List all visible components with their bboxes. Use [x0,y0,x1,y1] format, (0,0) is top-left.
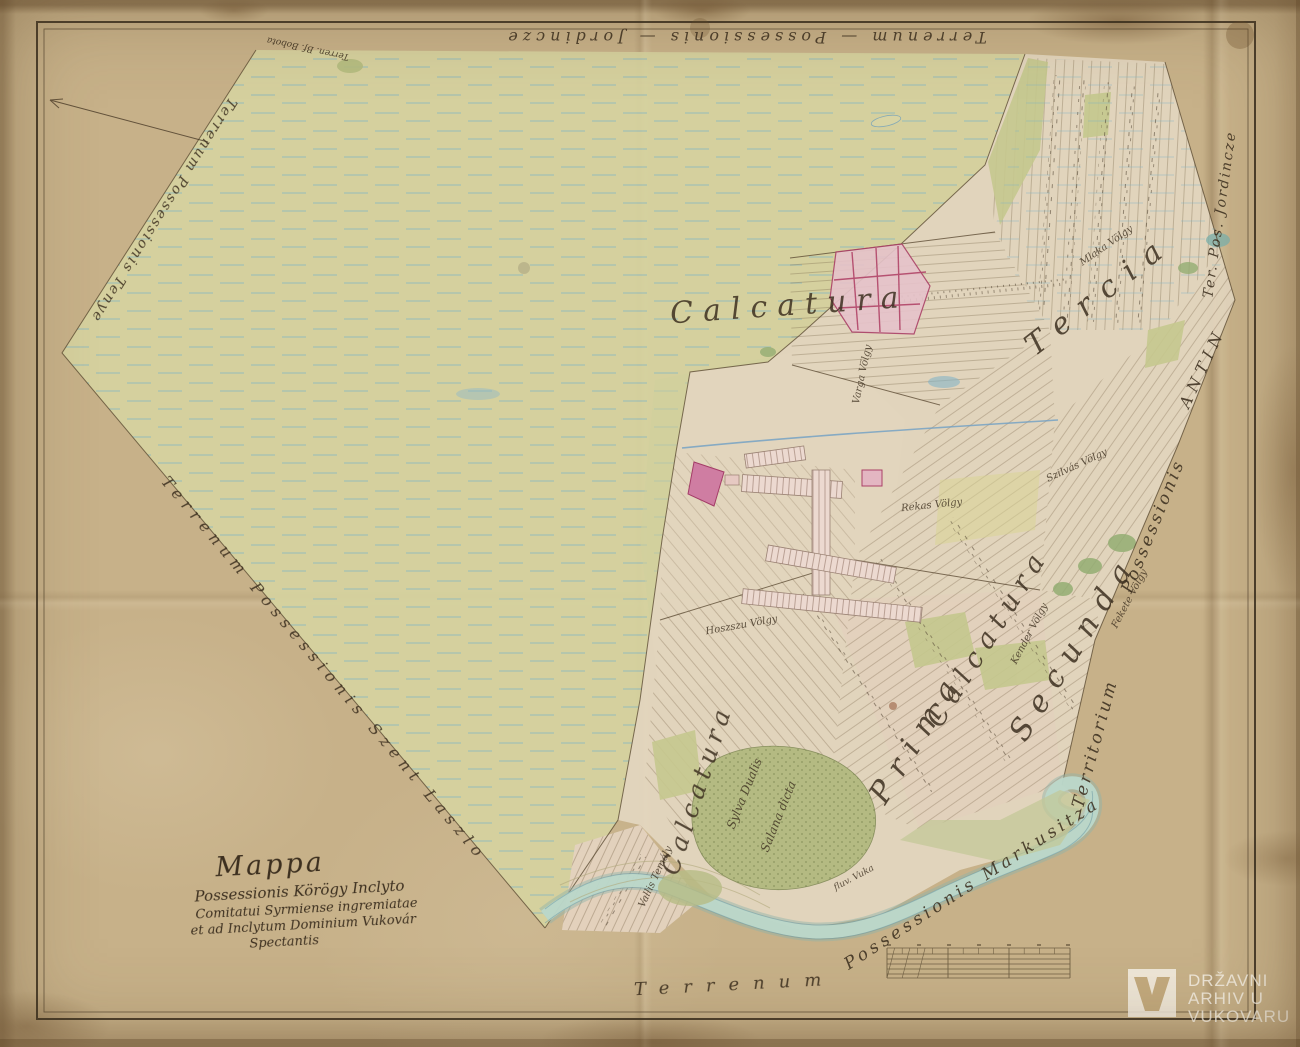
map-artwork: Terrenum — Possessionis — Jordincze Terr… [0,0,1300,1047]
edge-label-top: Terrenum — Possessionis — Jordincze [503,28,986,47]
title-cartouche: Mappa Possessionis Körögy Inclyto Comita… [187,842,420,955]
map-scan: Terrenum — Possessionis — Jordincze Terr… [0,0,1300,1047]
title-line1: Mappa [214,847,326,884]
watermark-line3: VUKOVARU [1188,1007,1290,1026]
scale-bar [887,945,1070,978]
archive-watermark: DRŽAVNI ARHIV U VUKOVARU [1128,969,1290,1026]
north-arrow [50,99,208,142]
edge-label-terrenum-bottom: Terrenum [634,969,836,1001]
watermark-line2: ARHIV U [1188,989,1264,1008]
water-patch [456,388,500,400]
title-line5: Spectantis [249,933,320,952]
watermark-line1: DRŽAVNI [1188,971,1268,990]
